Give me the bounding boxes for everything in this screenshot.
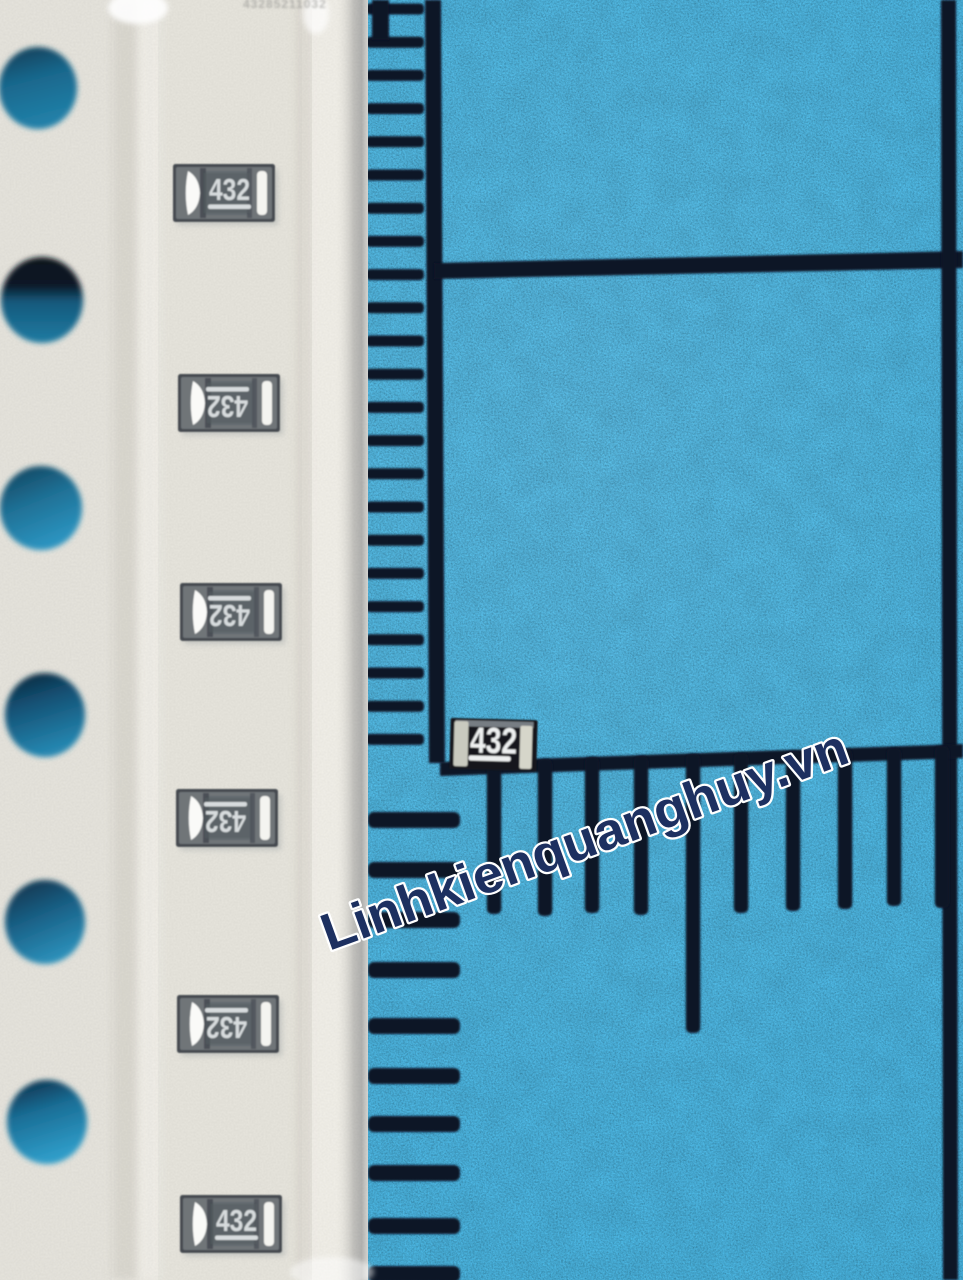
svg-text:432: 432	[470, 719, 518, 761]
svg-text:43285211032: 43285211032	[243, 0, 327, 11]
